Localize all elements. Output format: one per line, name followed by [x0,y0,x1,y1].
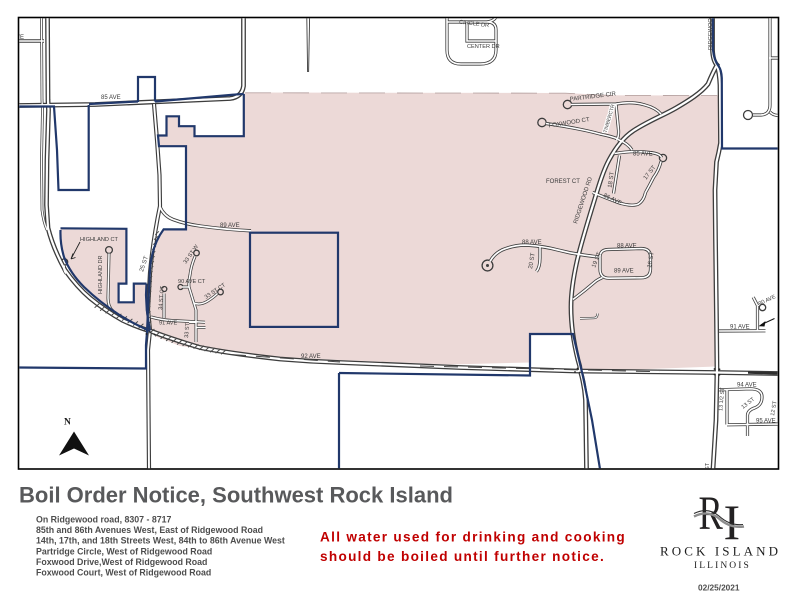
svg-text:ROCK ISLAND: ROCK ISLAND [660,544,781,559]
svg-text:Boil Order Notice, Southwest R: Boil Order Notice, Southwest Rock Island [19,483,453,508]
svg-text:85th and 86th Avenues West, Ea: 85th and 86th Avenues West, East of Ridg… [36,525,263,535]
svg-text:RIDGEWOOD: RIDGEWOOD [708,14,714,50]
svg-text:ILLINOIS: ILLINOIS [694,561,751,571]
svg-text:I: I [724,494,741,550]
svg-text:CENTER DR: CENTER DR [467,44,500,50]
svg-text:94 AVE: 94 AVE [737,383,757,389]
svg-text:HIGHLAND DR: HIGHLAND DR [98,255,104,294]
svg-text:95 AVE: 95 AVE [756,419,776,425]
svg-text:91 AVE: 91 AVE [730,325,750,331]
svg-text:Partridge Circle, West of Ridg: Partridge Circle, West of Ridgewood Road [36,546,212,556]
svg-text:92 AVE: 92 AVE [301,354,321,360]
svg-text:88 AVE: 88 AVE [617,244,637,250]
svg-text:FOREST CT: FOREST CT [546,179,580,185]
svg-text:N: N [64,418,71,428]
svg-text:Foxwood Court, West of Ridgewo: Foxwood Court, West of Ridgewood Road [36,568,211,578]
svg-text:91 AVE: 91 AVE [159,321,178,327]
svg-text:HIGHLAND CT: HIGHLAND CT [80,237,118,243]
svg-text:On Ridgewood road, 8307 - 8717: On Ridgewood road, 8307 - 8717 [36,515,172,525]
svg-text:Foxwood Drive,West of Ridgewoo: Foxwood Drive,West of Ridgewood Road [36,557,207,567]
svg-text:85 AVE: 85 AVE [633,152,653,158]
svg-text:90 AVE CT: 90 AVE CT [178,279,206,285]
svg-text:89 AVE: 89 AVE [220,223,240,229]
svg-text:89 AVE: 89 AVE [614,269,634,275]
svg-text:02/25/2021: 02/25/2021 [698,583,740,593]
svg-text:85 AVE: 85 AVE [101,95,121,101]
svg-text:should be boiled until further: should be boiled until further notice. [320,549,605,564]
svg-text:88 AVE: 88 AVE [522,240,542,246]
svg-text:14th, 17th, and 18th Streets W: 14th, 17th, and 18th Streets West, 84th … [36,536,285,546]
svg-text:All water used for drinking an: All water used for drinking and cooking [320,530,626,545]
